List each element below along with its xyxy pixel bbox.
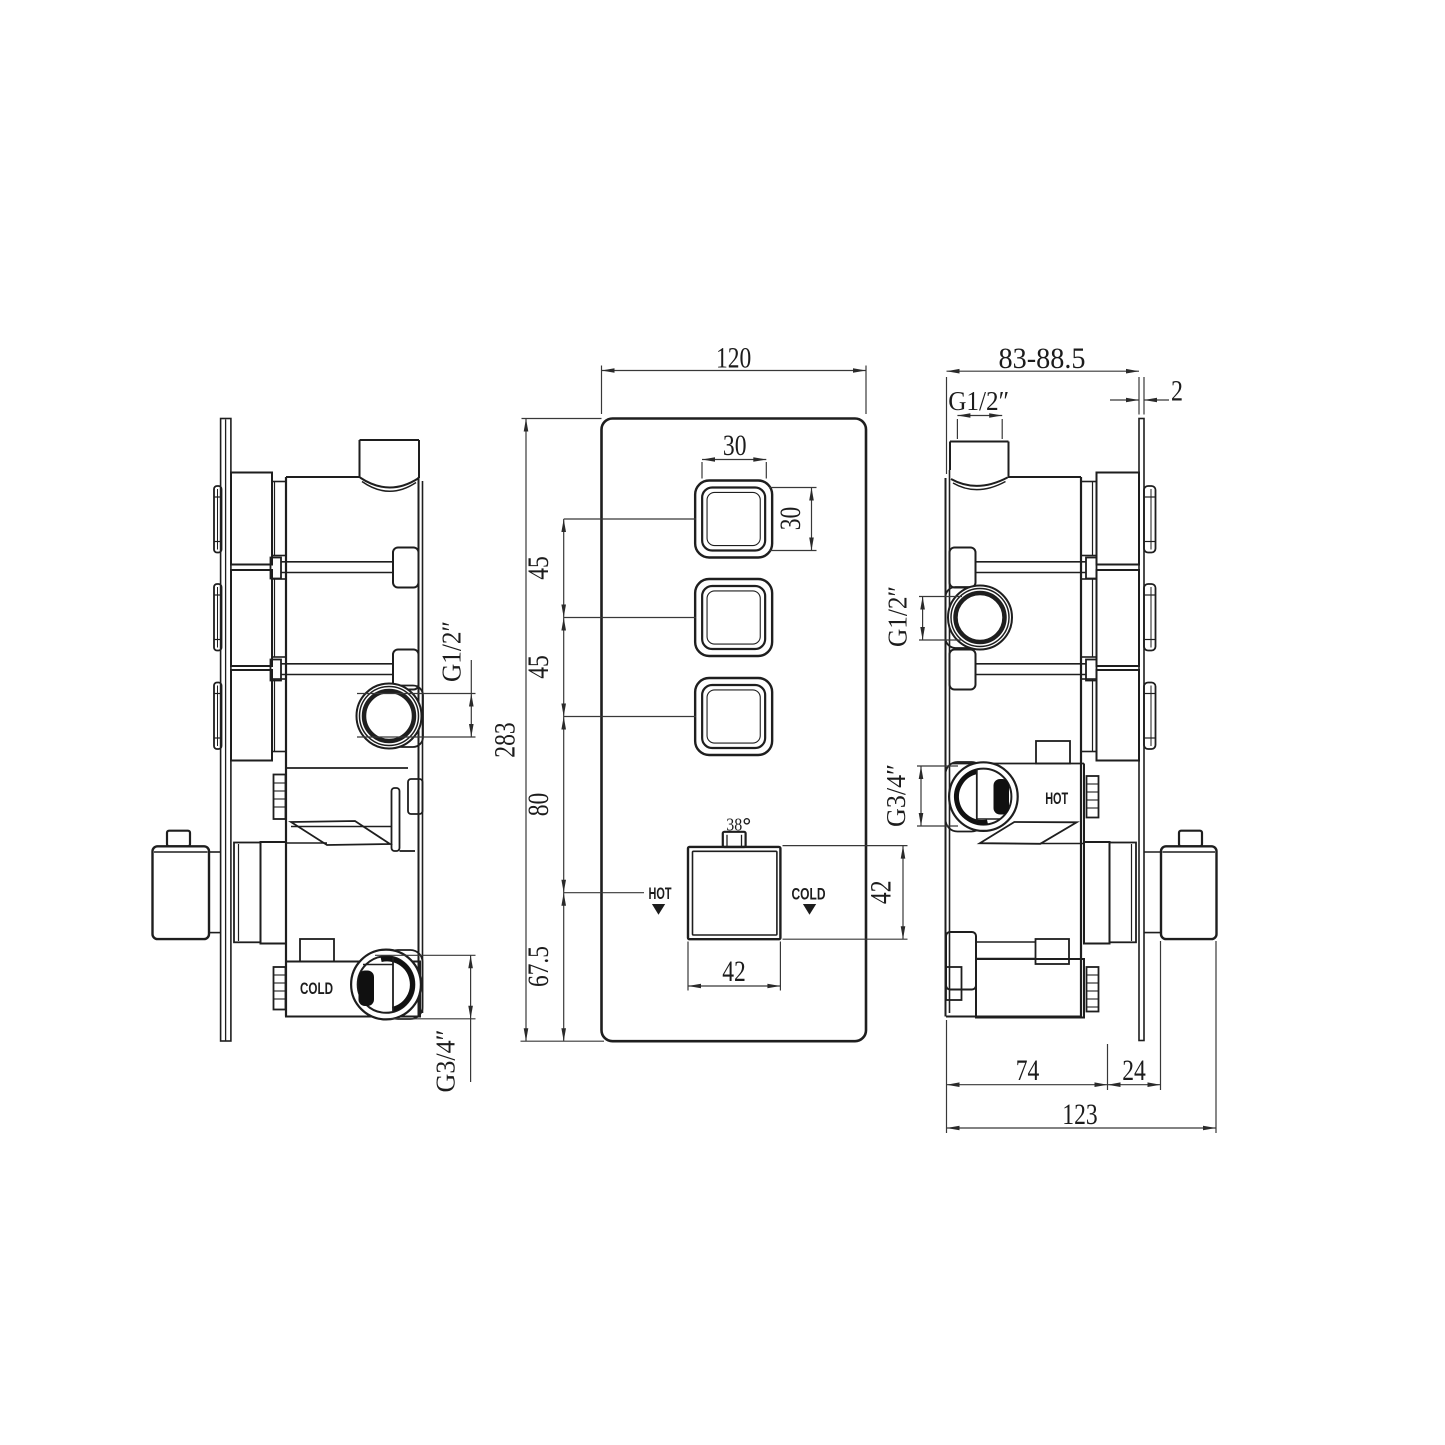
svg-text:30: 30 <box>723 429 747 462</box>
svg-text:42: 42 <box>722 955 746 988</box>
svg-text:G1/2″: G1/2″ <box>948 386 1009 416</box>
svg-text:COLD: COLD <box>792 885 826 904</box>
svg-text:42: 42 <box>865 881 898 905</box>
svg-text:HOT: HOT <box>1045 789 1068 808</box>
svg-text:2: 2 <box>1171 375 1183 408</box>
svg-text:G1/2″: G1/2″ <box>437 621 467 682</box>
svg-text:83-88.5: 83-88.5 <box>999 342 1086 375</box>
svg-text:45: 45 <box>522 556 555 580</box>
svg-text:120: 120 <box>716 342 751 375</box>
svg-text:30: 30 <box>774 507 807 531</box>
svg-text:G3/4″: G3/4″ <box>431 1030 461 1093</box>
svg-text:283: 283 <box>489 722 522 757</box>
svg-text:74: 74 <box>1016 1054 1040 1087</box>
svg-text:45: 45 <box>522 655 555 679</box>
svg-text:G3/4″: G3/4″ <box>881 764 911 827</box>
svg-text:HOT: HOT <box>649 884 672 903</box>
svg-text:80: 80 <box>522 793 555 817</box>
svg-text:67.5: 67.5 <box>522 946 555 987</box>
svg-text:G1/2″: G1/2″ <box>883 586 913 647</box>
svg-text:COLD: COLD <box>300 980 333 998</box>
svg-text:123: 123 <box>1062 1098 1097 1131</box>
svg-text:38: 38 <box>726 815 742 835</box>
svg-text:24: 24 <box>1122 1054 1146 1087</box>
